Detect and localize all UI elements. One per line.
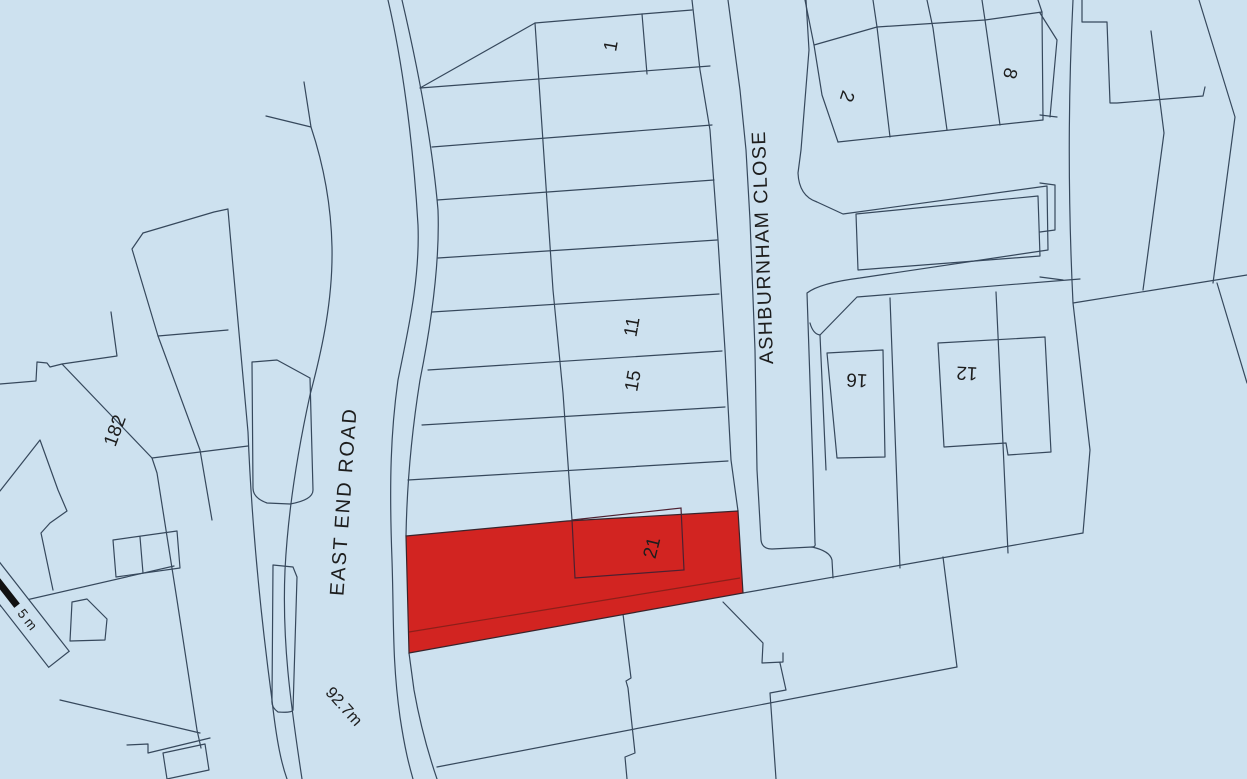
map-canvas: EAST END ROAD ASHBURNHAM CLOSE 92.7m 1 2… [0, 0, 1247, 779]
plot-label-16: 16 [846, 368, 868, 390]
plot-label-15: 15 [621, 369, 645, 393]
site-location-plan: EAST END ROAD ASHBURNHAM CLOSE 92.7m 1 2… [0, 0, 1247, 779]
plot-label-11: 11 [620, 315, 644, 338]
plot-label-12: 12 [956, 361, 978, 383]
